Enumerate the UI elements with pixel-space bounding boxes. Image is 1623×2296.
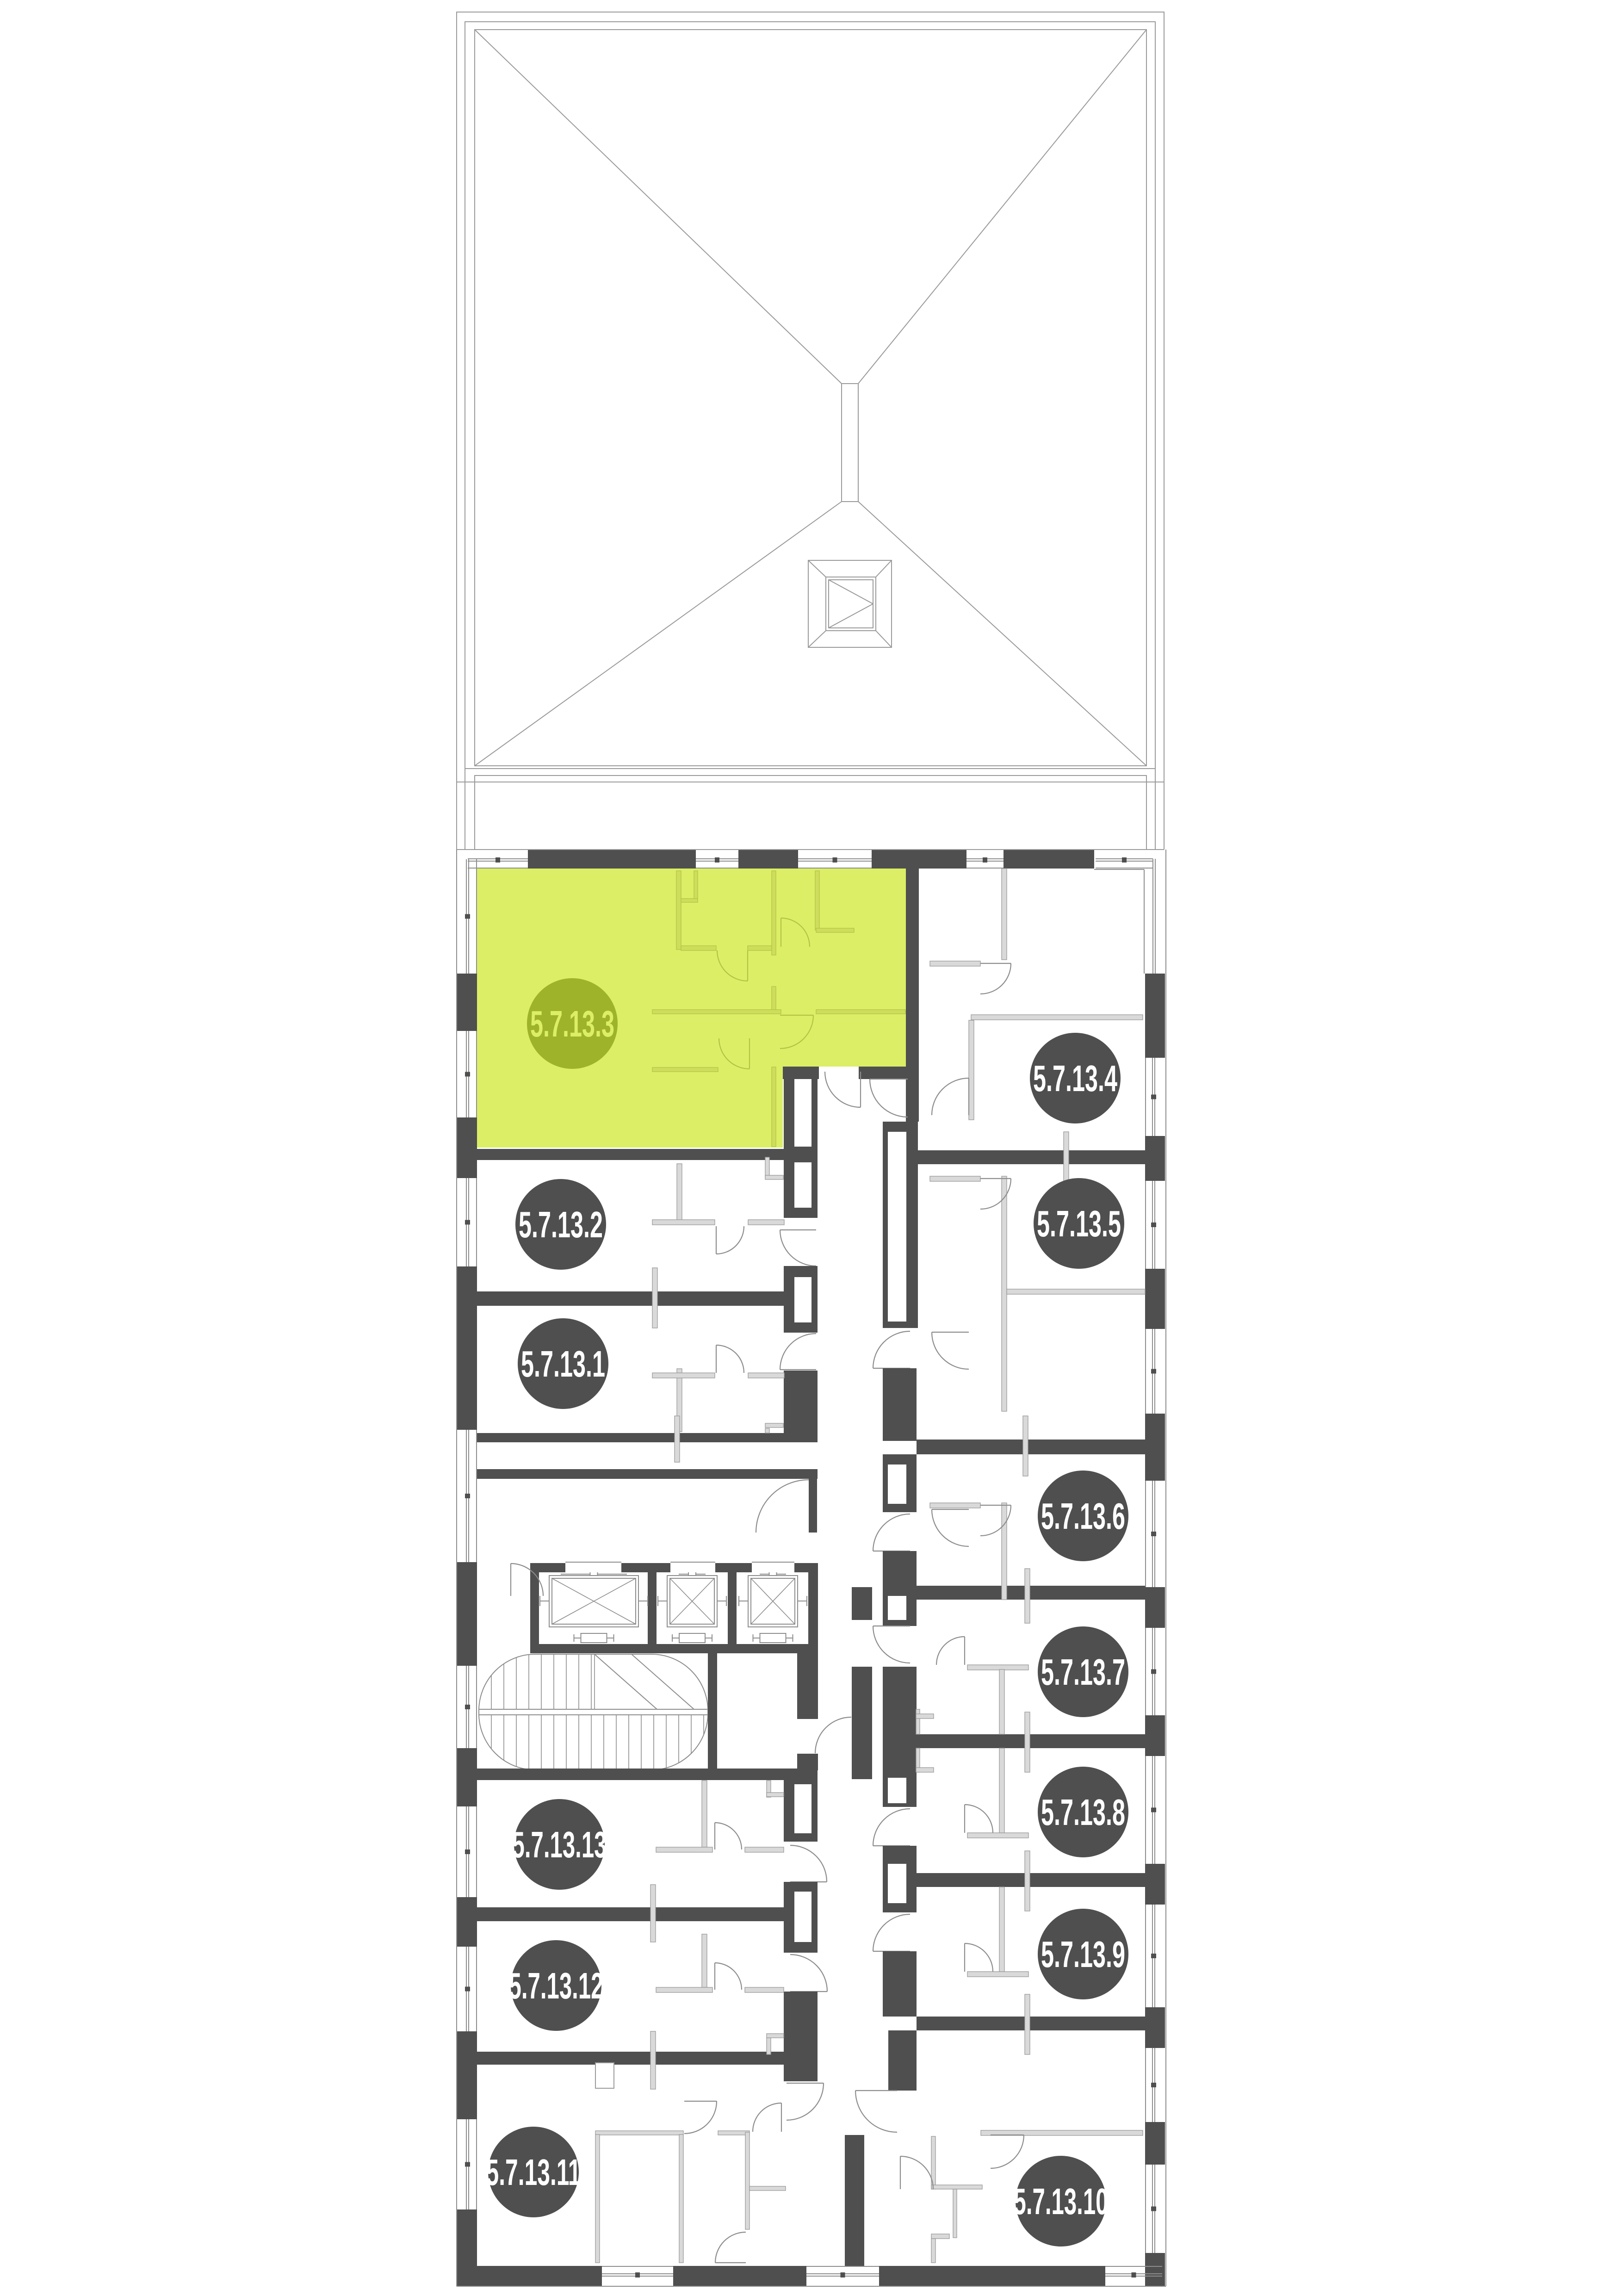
svg-text:5.7.13.2: 5.7.13.2 bbox=[519, 1204, 603, 1245]
svg-text:5.7.13.5: 5.7.13.5 bbox=[1037, 1203, 1121, 1244]
svg-text:5.7.13.13: 5.7.13.13 bbox=[512, 1824, 607, 1865]
svg-text:5.7.13.1: 5.7.13.1 bbox=[521, 1343, 605, 1384]
svg-text:5.7.13.4: 5.7.13.4 bbox=[1033, 1058, 1117, 1099]
svg-text:5.7.13.12: 5.7.13.12 bbox=[509, 1965, 604, 2006]
svg-text:5.7.13.9: 5.7.13.9 bbox=[1041, 1934, 1125, 1975]
svg-text:5.7.13.10: 5.7.13.10 bbox=[1014, 2181, 1109, 2222]
svg-text:5.7.13.6: 5.7.13.6 bbox=[1041, 1496, 1125, 1537]
svg-text:5.7.13.11: 5.7.13.11 bbox=[486, 2152, 581, 2193]
svg-text:5.7.13.3: 5.7.13.3 bbox=[530, 1003, 614, 1044]
svg-text:5.7.13.8: 5.7.13.8 bbox=[1041, 1792, 1125, 1833]
svg-text:5.7.13.7: 5.7.13.7 bbox=[1041, 1651, 1125, 1693]
